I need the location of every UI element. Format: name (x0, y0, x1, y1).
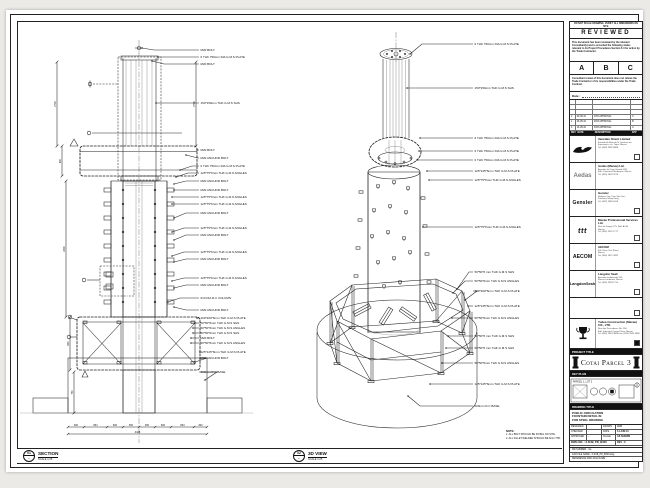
key-plan: PARCEL 1, LOT 2 (570, 377, 642, 404)
ttt-logo: ttt (570, 217, 596, 243)
venetian-lion-logo-icon (570, 136, 596, 162)
svg-text:M20 ANCHOR BOLT: M20 ANCHOR BOLT (201, 156, 229, 160)
svg-text:M20 BOLT: M20 BOLT (201, 148, 215, 152)
svg-text:125*75*6mm THK G.M.S ANGLES: 125*75*6mm THK G.M.S ANGLES (201, 195, 247, 199)
rev-letter: REV : C (616, 441, 642, 446)
no-scale-note: DO NOT SCALE DRAWING. VERIFY ALL DIMENSI… (570, 22, 642, 29)
review-checkbox (634, 262, 640, 268)
consultant-row-aedas: Aedas Aedas (Macau) Ltd. Avenida da Prai… (570, 163, 642, 190)
svg-text:125*75*6mm THK G.M.S ANGLES: 125*75*6mm THK G.M.S ANGLES (475, 225, 521, 229)
svg-text:6 THK 750mm DIA G.M.S PLATE: 6 THK 750mm DIA G.M.S PLATE (201, 55, 245, 59)
svg-text:150*150mm THK G.M.S SHS: 150*150mm THK G.M.S SHS (475, 86, 514, 90)
iso-view-title: 02 - 3D VIEW SCALE 1:25 (293, 450, 327, 462)
review-status-boxes: A B C (570, 62, 642, 75)
svg-text:400*200*6mm THK G.M.S PLATE: 400*200*6mm THK G.M.S PLATE (201, 316, 246, 320)
gensler-logo: Gensler (570, 190, 596, 216)
revision-table-header: REVDATE DESCRIPTIONAPP (570, 131, 642, 135)
svg-text:2700: 2700 (54, 101, 57, 107)
section-view-title: 01 - SECTION SCALE 1:25 (23, 450, 58, 462)
svg-text:600mm R.C BASE: 600mm R.C BASE (475, 404, 500, 408)
svg-text:6 THK 750mm DIA G.M.S PLATE: 6 THK 750mm DIA G.M.S PLATE (475, 149, 519, 153)
iso-detail-bubble: 02 - (293, 450, 305, 462)
section-scale-label: SCALE 1:25 (38, 458, 58, 461)
review-checkbox (634, 208, 640, 214)
review-checkbox (634, 154, 640, 160)
aedas-logo: Aedas (570, 163, 596, 189)
reviewed-stamp-text-1: This document has been reviewed by the r… (570, 39, 642, 62)
svg-text:2400: 2400 (63, 246, 66, 252)
svg-text:M20 ANCHOR BOLT: M20 ANCHOR BOLT (201, 308, 229, 312)
svg-text:2700: 2700 (193, 101, 196, 107)
reviewed-stamp-text-2: Consultant review of this document does … (570, 75, 642, 92)
ornamental-column-icon (633, 356, 640, 369)
svg-text:610 DIA R.C COLUMN: 610 DIA R.C COLUMN (201, 296, 232, 300)
svg-text:6 THK 750mm DIA G.M.S PLATE: 6 THK 750mm DIA G.M.S PLATE (475, 42, 519, 46)
svg-text:M20 BOLT: M20 BOLT (201, 62, 215, 66)
reference-dwg-row: REFERENCE DWG FILE NAME : (570, 457, 642, 461)
date-label: Date : (572, 94, 580, 98)
note-line-2: 2. ALL FILLET WELDED SHOULD BE 6mm THK. (506, 437, 561, 440)
drawing-sheet: M20 BOLT6 THK 750mm DIA G.M.S PLATEM20 B… (6, 10, 643, 472)
project-name-row: Cotai Parcel 3 (570, 355, 642, 371)
svg-text:600: 600 (161, 424, 166, 427)
svg-text:50*50*6mm THK G.M.S ANGLES: 50*50*6mm THK G.M.S ANGLES (201, 341, 246, 345)
iso-view-drawing (317, 32, 477, 428)
svg-text:50*50*6 mm THK G.M.S SHS: 50*50*6 mm THK G.M.S SHS (475, 270, 515, 274)
svg-text:400*200*6mm THK G.M.S PLATE: 400*200*6mm THK G.M.S PLATE (475, 289, 520, 293)
svg-text:125*125*6mm THK G.M.S PLATE: 125*125*6mm THK G.M.S PLATE (475, 304, 520, 308)
drawing-title-text: PUBLIC CIRCULATION FOUNTAIN DETAIL IN FO… (570, 410, 642, 425)
yudea-trophy-logo-icon (570, 319, 596, 348)
svg-text:125*75*6mm THK G.M.S ANGLES: 125*75*6mm THK G.M.S ANGLES (201, 250, 247, 254)
svg-text:125*125*6mm THK G.M.S PLATE: 125*125*6mm THK G.M.S PLATE (475, 169, 520, 173)
svg-text:50*50*6 mm THK G.M.S SHS: 50*50*6 mm THK G.M.S SHS (475, 346, 515, 350)
svg-text:50*50*6mm THK G.M.S ANGLES: 50*50*6mm THK G.M.S ANGLES (475, 361, 520, 365)
svg-text:300: 300 (74, 424, 79, 427)
consultant-row-venetian: Venetian Orient Limited Estrada da Baía … (570, 136, 642, 163)
title-block: DO NOT SCALE DRAWING. VERIFY ALL DIMENSI… (569, 21, 643, 462)
svg-text:6 THK 750mm DIA G.M.S PLATE: 6 THK 750mm DIA G.M.S PLATE (475, 136, 519, 140)
ornamental-column-icon (572, 356, 579, 369)
svg-text:M20 ANCHOR BOLT: M20 ANCHOR BOLT (201, 257, 229, 261)
svg-text:125*75*6mm THK G.M.S ANGLES: 125*75*6mm THK G.M.S ANGLES (201, 226, 247, 230)
review-checkbox (634, 235, 640, 241)
svg-text:864: 864 (180, 424, 185, 427)
svg-text:125*75*6mm THK G.M.S ANGLES: 125*75*6mm THK G.M.S ANGLES (475, 178, 521, 182)
svg-text:M20 ANCHOR BOLT: M20 ANCHOR BOLT (201, 233, 229, 237)
svg-text:50*50*6mm THK G.M.S ANGLES: 50*50*6mm THK G.M.S ANGLES (201, 326, 246, 330)
bubble-ref: - (294, 456, 304, 460)
status-c-cell: C (619, 62, 642, 74)
svg-text:600mm R.C BASE: 600mm R.C BASE (201, 370, 226, 374)
drawing-sheet-page: { "sheet_note": "DO NOT SCALE DRAWING. V… (0, 0, 650, 488)
contractor-row: Yudea Construction (Macau) CO., LTD. Rua… (570, 319, 642, 349)
svg-text:125*75*6mm THK G.M.S ANGLES: 125*75*6mm THK G.M.S ANGLES (201, 171, 247, 175)
contractor-mark (634, 340, 640, 346)
svg-text:125*125*6mm THK G.M.S PLATE: 125*125*6mm THK G.M.S PLATE (475, 382, 520, 386)
svg-text:800: 800 (67, 341, 70, 346)
bubble-ref: - (24, 456, 34, 460)
svg-text:125*75*6mm THK G.M.S ANGLES: 125*75*6mm THK G.M.S ANGLES (201, 202, 247, 206)
review-checkbox (634, 289, 640, 295)
svg-text:50*50*6mm THK G.M.S ANGLES: 50*50*6mm THK G.M.S ANGLES (475, 279, 520, 283)
consultant-row-langdon-seah: LangdonSeah Langdon Seah Avenida da Amiz… (570, 271, 642, 298)
file-info-rows: MD NUMBER : n/a CAD FILE NAME : 3-SUB_PD… (570, 448, 642, 461)
svg-text:M20 ANCHOR BOLT: M20 ANCHOR BOLT (201, 211, 229, 215)
consultant-row-gensler: Gensler Gensler Harbour City, Tsim Sha T… (570, 190, 642, 217)
svg-text:125*125*6mm THK G.M.S PLATE: 125*125*6mm THK G.M.S PLATE (201, 350, 246, 354)
review-date-row: Date : (570, 92, 642, 100)
svg-text:M20 BOLT: M20 BOLT (201, 48, 215, 52)
svg-text:M20 BOLT: M20 BOLT (201, 336, 215, 340)
svg-text:4428: 4428 (135, 431, 141, 434)
project-name: Cotai Parcel 3 (581, 358, 631, 367)
key-plan-tag: PARCEL 1, LOT 2 (573, 381, 593, 384)
general-notes: NOTE: 1. ALL BOLT SHOULD BE FIXING ON SI… (506, 430, 564, 440)
view-title-band: 01 - SECTION SCALE 1:25 02 - 3D VIEW SCA… (17, 448, 562, 463)
svg-text:750: 750 (71, 390, 74, 395)
dwg-number: DWG NO. : 3-SUB_PD_B000 (570, 441, 616, 446)
iso-scale-label: SCALE 1:25 (308, 458, 327, 461)
svg-text:M20 ANCHOR BOLT: M20 ANCHOR BOLT (201, 179, 229, 183)
svg-text:450: 450 (129, 424, 134, 427)
status-a-cell: A (570, 62, 594, 74)
reviewed-stamp-title: REVIEWED (570, 29, 642, 39)
empty-consultant-box (570, 298, 642, 319)
svg-text:150*150mm THK G.M.S SHS: 150*150mm THK G.M.S SHS (201, 101, 240, 105)
svg-text:M20 ANCHOR BOLT: M20 ANCHOR BOLT (201, 188, 229, 192)
svg-text:50*50*6mm THK G.M.S SHS: 50*50*6mm THK G.M.S SHS (201, 321, 240, 325)
revision-table: 209-06-10 FOR APPROVALC 126-05-10 FOR AP… (570, 100, 642, 136)
cad-drawing-canvas: M20 BOLT6 THK 750mm DIA G.M.S PLATEM20 B… (17, 21, 562, 462)
consultant-row-aecom: AECOM AECOM 8/F China Civil Plaza, Macau… (570, 244, 642, 271)
aecom-logo: AECOM (570, 244, 596, 270)
svg-text:M20 ANCHOR BOLT: M20 ANCHOR BOLT (201, 356, 229, 360)
svg-text:125*75*6mm THK G.M.S ANGLES: 125*75*6mm THK G.M.S ANGLES (201, 276, 247, 280)
title-fields: DESIGNED DRAWNLHO CHECKED- DATE14-JUN-10… (570, 425, 642, 448)
svg-text:450: 450 (145, 424, 150, 427)
status-b-cell: B (594, 62, 618, 74)
svg-text:864: 864 (93, 424, 98, 427)
section-detail-bubble: 01 - (23, 450, 35, 462)
svg-text:600: 600 (113, 424, 118, 427)
svg-text:M20 ANCHOR BOLT: M20 ANCHOR BOLT (201, 283, 229, 287)
consultant-row-mps: ttt Macau Professional Services Ltd. Rua… (570, 217, 642, 244)
svg-text:6 THK 750mm DIA G.M.S PLATE: 6 THK 750mm DIA G.M.S PLATE (201, 164, 245, 168)
svg-text:800: 800 (59, 158, 62, 163)
langdon-seah-logo: LangdonSeah (570, 271, 596, 297)
svg-text:6 THK 750mm DIA G.M.S PLATE: 6 THK 750mm DIA G.M.S PLATE (475, 158, 519, 162)
review-checkbox (634, 310, 640, 316)
svg-text:50*50*6mm THK G.M.S SHS: 50*50*6mm THK G.M.S SHS (201, 331, 240, 335)
svg-text:50*50*6 mm THK G.M.S SHS: 50*50*6 mm THK G.M.S SHS (475, 334, 515, 338)
svg-text:50*50*6mm THK G.M.S ANGLES: 50*50*6mm THK G.M.S ANGLES (475, 316, 520, 320)
svg-text:300: 300 (198, 424, 203, 427)
key-plan-drawing: PARCEL 1, LOT 2 (570, 377, 642, 404)
